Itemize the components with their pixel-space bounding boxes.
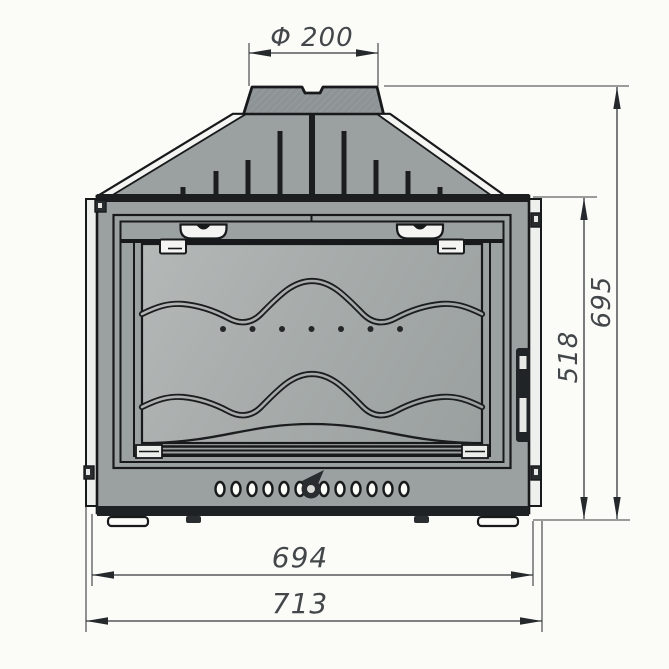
dot: [250, 326, 256, 332]
fin: [246, 160, 251, 197]
right-mounting-flange: [529, 199, 541, 506]
vent-hole: [384, 482, 393, 496]
vent-hole: [264, 482, 273, 496]
dot: [220, 326, 226, 332]
foot-tab-right: [414, 516, 429, 523]
door-lock-bar: [516, 348, 530, 442]
tab-slot: [86, 469, 90, 475]
flue-collar-body: [243, 87, 384, 116]
vent-hole: [320, 482, 329, 496]
vent-hole: [248, 482, 257, 496]
fin: [374, 160, 379, 197]
dot: [368, 326, 374, 332]
dot: [397, 326, 403, 332]
fin: [214, 171, 219, 197]
dot: [338, 326, 344, 332]
center-seam: [309, 115, 315, 197]
fin: [342, 131, 347, 197]
fin: [278, 131, 283, 197]
vent-hole: [352, 482, 361, 496]
fin: [406, 171, 411, 197]
base: [97, 506, 529, 526]
tab-slot: [98, 203, 102, 208]
latch-keeper-left: [160, 240, 186, 254]
door: [114, 215, 531, 468]
foot-tab-left: [186, 516, 201, 523]
arrowhead-left: [92, 571, 114, 578]
top-band: [97, 194, 529, 202]
flue-collar: [243, 87, 384, 116]
drawing-canvas: Φ 200 695 518 694 713: [0, 0, 669, 669]
tab-slot: [534, 216, 538, 222]
lock-bar-slot-bottom: [520, 398, 527, 432]
arrowhead-left: [86, 617, 108, 624]
dimension-label-flue: Φ 200: [270, 23, 353, 53]
vent-hole: [280, 482, 289, 496]
arrowhead-bottom: [580, 497, 587, 519]
arrowhead-top: [580, 198, 587, 220]
vent-hole: [336, 482, 345, 496]
foot-left: [108, 517, 148, 526]
dot: [309, 326, 315, 332]
vent-hole: [400, 482, 409, 496]
base-band: [97, 506, 529, 516]
dimension-flue-diameter: Φ 200: [249, 23, 378, 86]
vent-hole: [216, 482, 225, 496]
door-glass: [142, 244, 482, 443]
dimension-label-inner-width: 694: [272, 541, 328, 574]
lock-bar-slot-top: [520, 356, 527, 369]
vent-control-knob-center: [307, 485, 315, 493]
dimension-label-overall-height: 695: [587, 276, 617, 329]
arrowhead-left: [249, 49, 271, 57]
dimension-body-height: 518: [533, 197, 597, 519]
hood: [98, 114, 505, 197]
arrowhead-bottom: [613, 497, 620, 519]
left-mounting-flange: [86, 199, 97, 506]
fireplace-front-view-drawing: Φ 200 695 518 694 713: [0, 0, 669, 669]
vent-hole: [232, 482, 241, 496]
arrowhead-top: [613, 87, 620, 109]
arrowhead-right: [356, 49, 378, 57]
dimension-label-overall-width: 713: [272, 587, 328, 620]
vent-hole: [368, 482, 377, 496]
arrowhead-right: [520, 617, 542, 624]
tab-slot: [534, 469, 538, 475]
arrowhead-right: [511, 571, 533, 578]
dimension-label-body-height: 518: [554, 331, 584, 384]
dimension-inner-width: 694: [92, 514, 533, 586]
foot-right: [478, 517, 518, 526]
dot: [279, 326, 285, 332]
latch-keeper-right: [438, 240, 464, 254]
